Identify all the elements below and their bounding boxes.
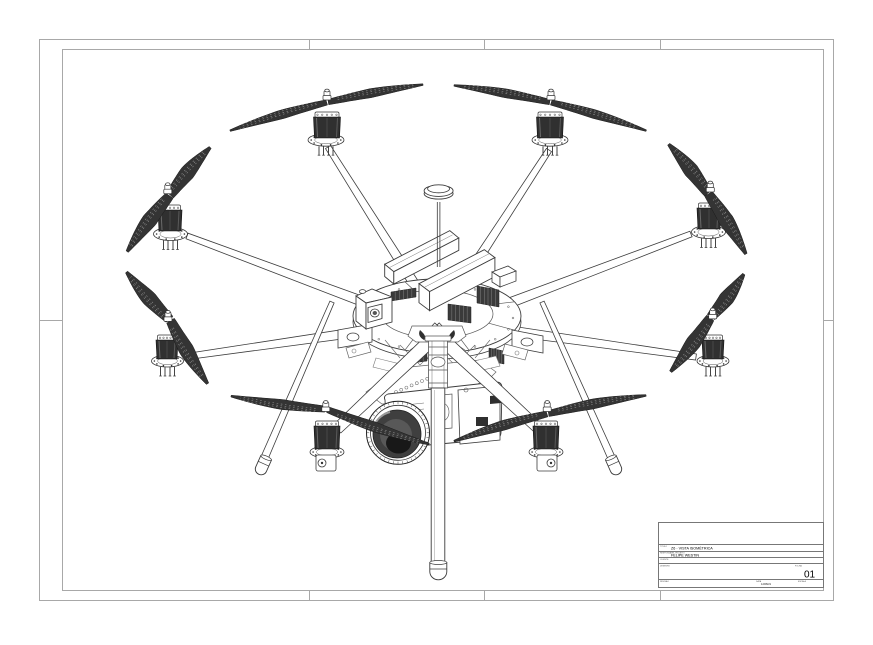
svg-text:DESENHO: DESENHO	[660, 565, 670, 567]
svg-text:REVISAO: REVISAO	[660, 580, 669, 583]
svg-text:ESCALA: ESCALA	[798, 580, 807, 583]
svg-text:TITULO: TITULO	[660, 546, 668, 548]
svg-text:FELIPE WESTIN: FELIPE WESTIN	[671, 553, 699, 557]
svg-text:FOLHA: FOLHA	[795, 564, 802, 567]
svg-text:Z6 - VISTA ISOMÉTRICA: Z6 - VISTA ISOMÉTRICA	[671, 546, 713, 551]
svg-text:12/08/21: 12/08/21	[761, 582, 772, 586]
svg-text:CLIENTE: CLIENTE	[660, 559, 669, 561]
svg-text:01: 01	[804, 570, 816, 581]
